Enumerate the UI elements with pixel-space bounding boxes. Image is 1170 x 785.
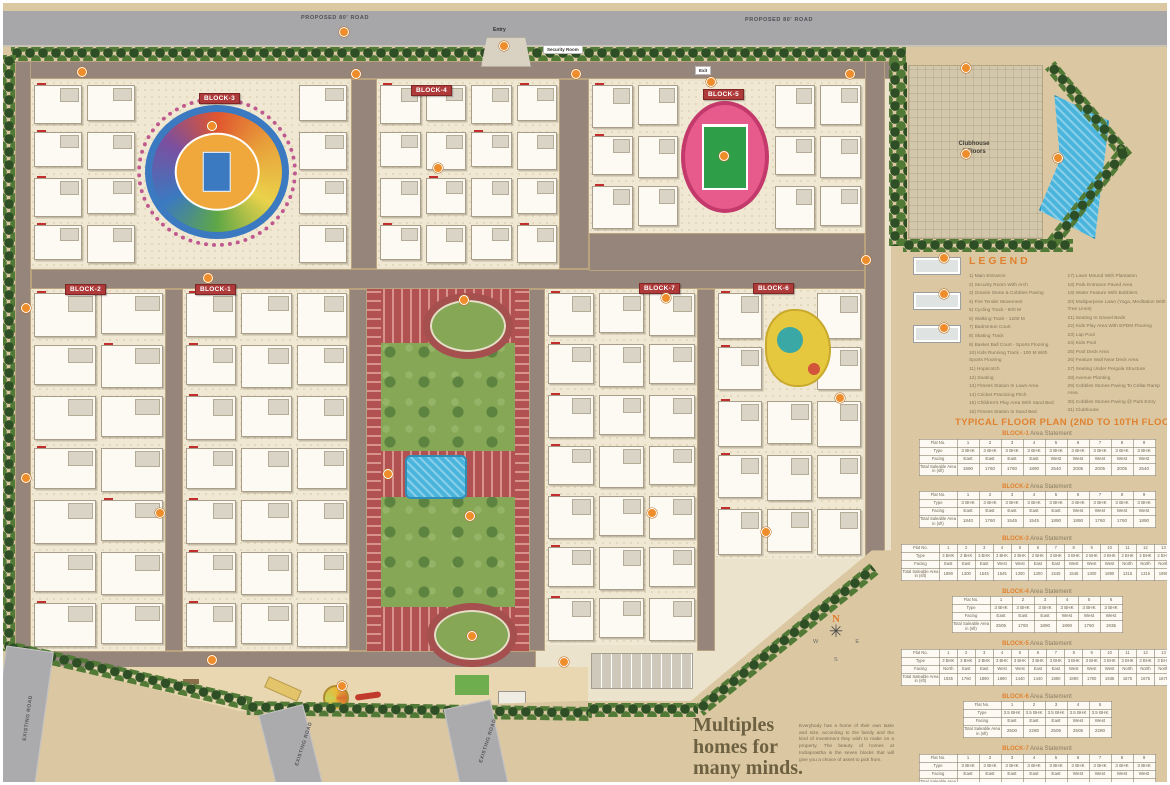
table-cell: West xyxy=(1111,508,1133,516)
building xyxy=(548,598,594,641)
legend-item: 6) Walking Track - 1200 M xyxy=(969,316,1063,323)
building xyxy=(548,344,594,384)
table-cell: 3 BHK xyxy=(1111,500,1133,508)
tree-line-club-bottom xyxy=(903,239,1073,252)
table-cell: North xyxy=(1154,560,1170,568)
legend-item: 16) Fitness Station In Sand Bed xyxy=(969,409,1063,416)
legend-item: 31) Clubhouse xyxy=(1068,407,1170,414)
table-cell: North xyxy=(939,665,957,673)
area-statement-table: Flat No.123456Type3 BHK3 BHK3 BHK3 BHK3 … xyxy=(952,596,1123,633)
number-marker-icon xyxy=(207,655,217,665)
table-cell: 9 xyxy=(1083,544,1101,552)
building xyxy=(592,85,633,128)
table-cell: 1 xyxy=(957,754,979,762)
table-cell: 2500 xyxy=(1001,726,1023,738)
table-cell: 3 BHK xyxy=(1001,500,1023,508)
row-header: Flat No. xyxy=(902,649,940,657)
table-cell: 3 BHK xyxy=(979,762,1001,770)
legend-item: 29) Cobbles Stones Paving To Cellar Ramp… xyxy=(1068,383,1170,397)
table-cell: West xyxy=(1056,613,1078,621)
table-cell: 3 xyxy=(1001,439,1023,447)
number-marker-icon xyxy=(499,41,509,51)
road-label-proposed-right: PROPOSED 80' ROAD xyxy=(745,17,813,23)
table-cell: 2505 xyxy=(990,621,1012,633)
table-cell: 1890 xyxy=(1065,673,1083,685)
table-cell: East xyxy=(1047,665,1065,673)
building xyxy=(299,225,347,264)
table-cell: West xyxy=(1101,560,1119,568)
building xyxy=(34,293,96,337)
building xyxy=(592,136,633,176)
number-marker-icon xyxy=(719,151,729,161)
table-cell: West xyxy=(1011,560,1029,568)
table-cell: 1 xyxy=(1001,702,1023,710)
number-marker-icon xyxy=(939,253,949,263)
table-cell: 3 BHK xyxy=(1045,500,1067,508)
table-cell: 3 BHK xyxy=(1067,447,1089,455)
table-cell: 1760 xyxy=(1111,516,1133,528)
table-cell: 8 xyxy=(1111,754,1133,762)
table-cell: 3 BHK xyxy=(939,552,957,560)
building xyxy=(649,395,695,438)
building xyxy=(548,293,594,336)
table-cell: 3.5 BHK xyxy=(1023,710,1045,718)
table-cell: 3 BHK xyxy=(1023,447,1045,455)
parking-rows xyxy=(591,653,693,689)
area-statement-table: Flat No.123456789Type3 BHK3 BHK3 BHK3 BH… xyxy=(919,754,1156,785)
table-cell: 12 xyxy=(1136,649,1154,657)
number-marker-icon xyxy=(21,303,31,313)
table-cell: 5 xyxy=(1045,492,1067,500)
road-perimeter-top xyxy=(15,61,891,79)
table-cell: 1 xyxy=(990,597,1012,605)
block-4-badge: BLOCK-4 xyxy=(411,85,452,96)
building xyxy=(718,401,762,447)
clubhouse-name: Clubhouse xyxy=(959,141,990,147)
legend-item: 9) Basket Ball Court - Sports Flooring xyxy=(969,342,1063,349)
floor-plan-title: TYPICAL FLOOR PLAN (2ND TO 10TH FLOOR) xyxy=(955,417,1170,428)
table-cell: 5 xyxy=(1089,702,1111,710)
number-marker-icon xyxy=(339,27,349,37)
compass-west: W xyxy=(813,639,818,645)
building xyxy=(186,448,236,489)
security-room-label: Security Room xyxy=(543,45,583,54)
area-statement-table: Flat No.12345678910111213Type3 BHK2 BHK3… xyxy=(901,544,1170,581)
row-header: Flat No. xyxy=(919,439,957,447)
site-plan-poster: PROPOSED 80' ROAD PROPOSED 80' ROAD xyxy=(0,0,1170,785)
table-cell: 1760 xyxy=(979,463,1001,475)
building xyxy=(34,603,96,647)
table-cell: 3.5 BHK xyxy=(1067,710,1089,718)
building xyxy=(548,496,594,539)
table-cell: West xyxy=(1067,770,1089,778)
number-marker-icon xyxy=(835,393,845,403)
row-header: Type xyxy=(902,552,940,560)
table-cell: 5 xyxy=(1078,597,1100,605)
table-cell: East xyxy=(1023,770,1045,778)
table-cell: 1760 xyxy=(1012,621,1034,633)
table-cell: 4 xyxy=(1023,754,1045,762)
table-cell: 3 BHK xyxy=(1089,762,1111,770)
building xyxy=(380,225,421,261)
building xyxy=(517,85,558,121)
table-cell: East xyxy=(975,665,993,673)
building xyxy=(241,345,291,389)
building xyxy=(34,396,96,440)
building xyxy=(380,178,421,217)
area-statement-block-7: BLOCK-7 Area StatementFlat No.123456789T… xyxy=(901,746,1170,785)
row-header: Type xyxy=(919,500,957,508)
table-cell: North xyxy=(1119,560,1137,568)
building xyxy=(767,455,811,501)
building xyxy=(517,178,558,214)
road-perimeter-left xyxy=(15,61,31,661)
legend-item: 10) Kids Running Track - 100 M With Spor… xyxy=(969,350,1063,364)
table-cell: West xyxy=(1089,508,1111,516)
table-cell: 1 xyxy=(957,492,979,500)
table-cell: East xyxy=(1001,718,1023,726)
building xyxy=(820,136,861,179)
table-cell: 11 xyxy=(1119,649,1137,657)
row-header: Type xyxy=(963,710,1001,718)
building xyxy=(101,500,163,541)
table-cell: West xyxy=(1067,508,1089,516)
building xyxy=(297,552,347,593)
table-cell: 13 xyxy=(1154,544,1170,552)
building xyxy=(34,132,82,168)
area-statement-block-name: BLOCK-7 xyxy=(1002,746,1029,752)
number-marker-icon xyxy=(351,69,361,79)
table-cell: 3 BHK xyxy=(1119,657,1137,665)
building xyxy=(297,396,347,440)
area-statement-block-1: BLOCK-1 Area StatementFlat No.123456789T… xyxy=(901,431,1170,476)
row-header: Type xyxy=(902,657,940,665)
legend-item: 18) Park Entrance Paved Area xyxy=(1068,282,1170,289)
table-cell: 3 BHK xyxy=(1011,657,1029,665)
table-cell: 3 BHK xyxy=(1001,447,1023,455)
building xyxy=(186,396,236,440)
table-cell: North xyxy=(1136,665,1154,673)
table-cell: West xyxy=(1089,770,1111,778)
row-header: Facing xyxy=(963,718,1001,726)
building xyxy=(718,347,762,390)
table-cell: 2005 xyxy=(1089,463,1111,475)
table-cell: 1760 xyxy=(1001,463,1023,475)
table-cell: East xyxy=(1001,508,1023,516)
road-perimeter-right xyxy=(865,61,885,561)
area-statement-block-6: BLOCK-6 Area StatementFlat No.12345Type3… xyxy=(901,694,1170,739)
water-feature-structure-3 xyxy=(913,325,961,343)
table-cell: 3 xyxy=(975,544,993,552)
row-header: Total Saleable Area in (sft) xyxy=(919,778,957,785)
table-cell: 2505 xyxy=(1045,726,1067,738)
table-cell: 1890 xyxy=(939,568,957,580)
building xyxy=(599,496,645,536)
park-lawn-patch xyxy=(455,675,489,695)
table-cell: 3 BHK xyxy=(1047,657,1065,665)
table-cell: 3.5 BHK xyxy=(1089,710,1111,718)
table-cell: 1545 xyxy=(1065,568,1083,580)
legend-column-2: 17) Lawn Mound With Plantation18) Park E… xyxy=(1068,273,1170,417)
area-statement-block-name: BLOCK-1 xyxy=(1002,431,1029,437)
table-cell: 3 BHK xyxy=(1133,447,1155,455)
table-cell: 1760 xyxy=(1089,516,1111,528)
table-cell: 7 xyxy=(1047,649,1065,657)
number-marker-icon xyxy=(337,681,347,691)
building xyxy=(649,446,695,486)
table-cell: 2140 xyxy=(957,778,979,785)
row-header: Flat No. xyxy=(919,492,957,500)
table-cell: 9 xyxy=(1083,649,1101,657)
building xyxy=(649,344,695,384)
table-cell: East xyxy=(1023,455,1045,463)
table-cell: 3 BHK xyxy=(1067,762,1089,770)
row-header: Total Saleable Area in (sft) xyxy=(902,568,940,580)
table-cell: 1760 xyxy=(1078,621,1100,633)
row-header: Total Saleable Area in (sft) xyxy=(963,726,1001,738)
table-cell: 3 xyxy=(1001,754,1023,762)
table-cell: East xyxy=(1023,508,1045,516)
table-cell: 2 BHK xyxy=(1136,552,1154,560)
legend-item: 11) Hopscotch xyxy=(969,366,1063,373)
table-cell: 3.5 BHK xyxy=(1001,710,1023,718)
table-cell: 1300 xyxy=(1011,568,1029,580)
legend-item: 25) Pool Deck Area xyxy=(1068,349,1170,356)
building xyxy=(548,547,594,587)
building xyxy=(649,547,695,587)
building xyxy=(101,448,163,492)
table-cell: East xyxy=(1012,613,1034,621)
table-cell: 3 BHK xyxy=(990,605,1012,613)
table-cell: 3 BHK xyxy=(1065,552,1083,560)
building xyxy=(517,225,558,264)
table-cell: 2 xyxy=(979,754,1001,762)
table-cell: 6 xyxy=(1029,544,1047,552)
table-cell: East xyxy=(939,560,957,568)
table-cell: 3 BHK xyxy=(975,552,993,560)
table-cell: 1300 xyxy=(957,568,975,580)
table-cell: 11 xyxy=(1119,544,1137,552)
number-marker-icon xyxy=(661,293,671,303)
table-cell: West xyxy=(1011,665,1029,673)
block-1-badge: BLOCK-1 xyxy=(195,284,236,295)
central-water-feature xyxy=(405,455,467,499)
building xyxy=(548,446,594,486)
row-header: Facing xyxy=(919,770,957,778)
number-marker-icon xyxy=(961,149,971,159)
building xyxy=(775,186,816,229)
row-header: Type xyxy=(919,762,957,770)
table-cell: 3 BHK xyxy=(957,500,979,508)
building xyxy=(297,603,347,647)
table-cell: West xyxy=(1111,770,1133,778)
cycling-track xyxy=(145,105,289,239)
table-cell: 1890 xyxy=(1101,568,1119,580)
table-cell: 1760 xyxy=(1133,778,1155,785)
area-statement-suffix: Area Statement xyxy=(1029,589,1072,595)
table-cell: 3 BHK xyxy=(1133,762,1155,770)
table-cell: East xyxy=(957,455,979,463)
table-cell: 6 xyxy=(1029,649,1047,657)
area-statement-table: Flat No.12345Type3.5 BHK3.5 BHK3.5 BHK3.… xyxy=(963,701,1112,738)
building xyxy=(34,500,96,544)
table-cell: 8 xyxy=(1065,649,1083,657)
table-cell: West xyxy=(1089,455,1111,463)
row-header: Flat No. xyxy=(902,544,940,552)
building xyxy=(186,603,236,647)
table-cell: 2 BHK xyxy=(1119,552,1137,560)
table-cell: East xyxy=(1023,718,1045,726)
number-marker-icon xyxy=(647,508,657,518)
table-cell: 2005 xyxy=(979,778,1001,785)
row-header: Flat No. xyxy=(919,754,957,762)
building xyxy=(471,85,512,124)
table-cell: East xyxy=(957,770,979,778)
table-cell: West xyxy=(1083,560,1101,568)
building xyxy=(297,293,347,337)
block-7-badge: BLOCK-7 xyxy=(639,283,680,294)
table-cell: 3 BHK xyxy=(975,657,993,665)
table-cell: 1300 xyxy=(1029,568,1047,580)
building xyxy=(817,509,861,555)
row-header: Type xyxy=(952,605,990,613)
building xyxy=(718,455,762,498)
table-cell: 8 xyxy=(1111,492,1133,500)
building xyxy=(599,395,645,435)
building xyxy=(638,186,679,226)
table-cell: 3.5 BHK xyxy=(1045,710,1067,718)
legend-item: 14) Cricket Practicing Pitch xyxy=(969,392,1063,399)
table-cell: 3 BHK xyxy=(939,657,957,665)
table-cell: 2 BHK xyxy=(1011,552,1029,560)
table-cell: 2 BHK xyxy=(1154,552,1170,560)
table-cell: 3 BHK xyxy=(1101,552,1119,560)
table-cell: 1300 xyxy=(1083,568,1101,580)
table-cell: East xyxy=(990,613,1012,621)
table-cell: 1315 xyxy=(1119,568,1137,580)
road-b4-b5 xyxy=(559,79,589,269)
legend-panel: LEGEND 1) Main Entrance2) Security Room … xyxy=(969,255,1170,417)
legend-item: 24) Kids Pool xyxy=(1068,340,1170,347)
table-cell: 10 xyxy=(1101,544,1119,552)
row-header: Facing xyxy=(902,560,940,568)
table-cell: 5 xyxy=(1045,439,1067,447)
table-cell: East xyxy=(1045,508,1067,516)
table-cell: East xyxy=(1045,718,1067,726)
building xyxy=(297,500,347,544)
building xyxy=(241,396,291,437)
table-cell: 3 BHK xyxy=(1100,605,1122,613)
table-cell: East xyxy=(979,508,1001,516)
building xyxy=(767,401,811,444)
building xyxy=(87,178,135,214)
table-cell: West xyxy=(1101,665,1119,673)
table-cell: West xyxy=(1089,718,1111,726)
table-cell: 1760 xyxy=(1083,673,1101,685)
legend-item: 8) Skating Track xyxy=(969,333,1063,340)
table-cell: North xyxy=(1136,560,1154,568)
number-marker-icon xyxy=(433,163,443,173)
area-statement-suffix: Area Statement xyxy=(1029,536,1072,542)
table-cell: 1890 xyxy=(993,673,1011,685)
table-cell: 5 xyxy=(1045,754,1067,762)
legend-item: 17) Lawn Mound With Plantation xyxy=(1068,273,1170,280)
building xyxy=(297,448,347,489)
building xyxy=(471,225,512,261)
table-cell: 5 xyxy=(1011,544,1029,552)
table-cell: 7 xyxy=(1089,439,1111,447)
number-marker-icon xyxy=(459,295,469,305)
area-statement-block-5: BLOCK-5 Area StatementFlat No.1234567891… xyxy=(901,641,1170,686)
table-cell: 6 xyxy=(1067,492,1089,500)
block-6-badge: BLOCK-6 xyxy=(753,283,794,294)
building xyxy=(380,132,421,168)
table-cell: 1760 xyxy=(1089,778,1111,785)
number-marker-icon xyxy=(1053,153,1063,163)
table-cell: West xyxy=(993,665,1011,673)
area-statement-suffix: Area Statement xyxy=(1029,484,1072,490)
building xyxy=(599,446,645,489)
area-statement-suffix: Area Statement xyxy=(1029,641,1072,647)
table-cell: 2 xyxy=(1012,597,1034,605)
legend-item: 26) Feature Wall Near Deck Area xyxy=(1068,357,1170,364)
number-marker-icon xyxy=(706,77,716,87)
table-cell: 1760 xyxy=(1111,778,1133,785)
number-marker-icon xyxy=(155,508,165,518)
table-cell: 1545 xyxy=(1001,516,1023,528)
table-cell: 9 xyxy=(1133,439,1155,447)
table-cell: 7 xyxy=(1089,754,1111,762)
legend-item: 15) Children's Play Area With Sand Bed xyxy=(969,400,1063,407)
table-cell: 2 BHK xyxy=(1029,552,1047,560)
tree-line-bottom-3 xyxy=(588,703,698,717)
building xyxy=(718,293,762,339)
table-cell: 3 BHK xyxy=(1047,552,1065,560)
table-cell: East xyxy=(1047,560,1065,568)
table-cell: East xyxy=(1001,455,1023,463)
legend-item: 1) Main Entrance xyxy=(969,273,1063,280)
table-cell: 1440 xyxy=(1011,673,1029,685)
table-cell: 5 xyxy=(1011,649,1029,657)
table-cell: 1760 xyxy=(979,516,1001,528)
track-infield xyxy=(175,133,260,211)
building xyxy=(775,85,816,128)
number-marker-icon xyxy=(845,69,855,79)
table-cell: 3 BHK xyxy=(993,552,1011,560)
table-cell: 8 xyxy=(1111,439,1133,447)
number-marker-icon xyxy=(571,69,581,79)
table-cell: 6 xyxy=(1100,597,1122,605)
area-statement-table: Flat No.12345678910111213Type3 BHK3 BHK3… xyxy=(901,649,1170,686)
table-cell: 3 BHK xyxy=(1089,500,1111,508)
table-cell: 1890 xyxy=(957,463,979,475)
road-center-b7 xyxy=(529,289,545,651)
building xyxy=(34,448,96,489)
table-cell: 3 BHK xyxy=(1034,605,1056,613)
road-b7-b6 xyxy=(697,289,715,651)
legend-item: 27) Seating Under Pergola Structure xyxy=(1068,366,1170,373)
table-cell: 4 xyxy=(993,544,1011,552)
table-cell: 1 xyxy=(939,544,957,552)
row-header: Facing xyxy=(952,613,990,621)
compass-east: E xyxy=(855,639,859,645)
block-2-badge: BLOCK-2 xyxy=(65,284,106,295)
table-cell: North xyxy=(1119,665,1137,673)
table-cell: West xyxy=(1065,560,1083,568)
table-cell: 3 BHK xyxy=(1083,657,1101,665)
road-b3-b4 xyxy=(351,79,377,269)
table-cell: 3 BHK xyxy=(957,762,979,770)
